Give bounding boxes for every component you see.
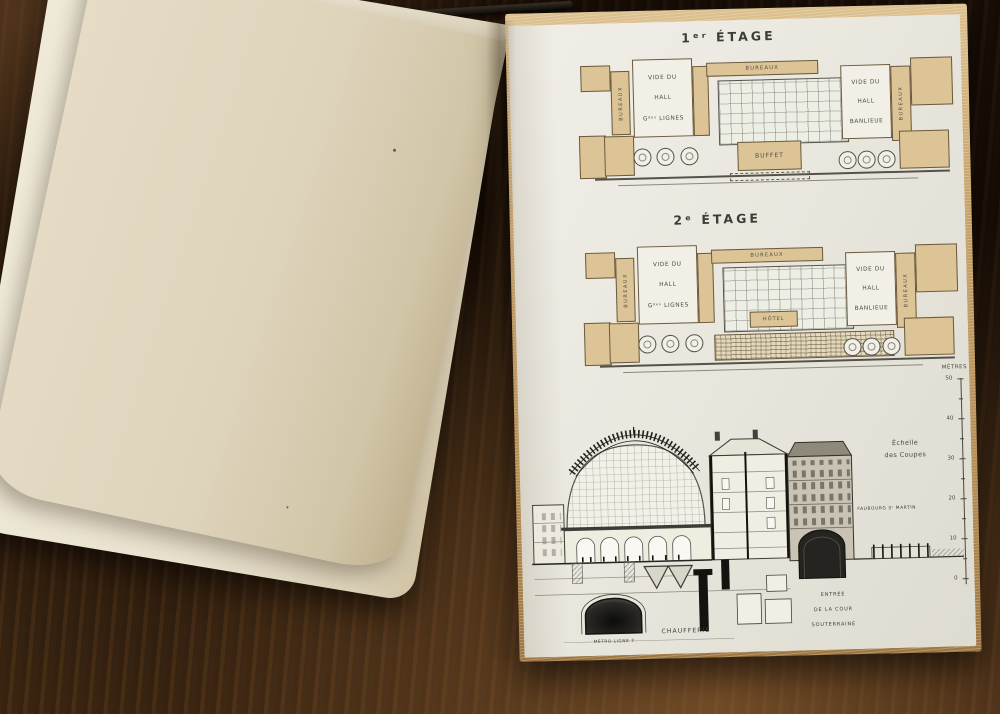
left-annex-building	[533, 505, 566, 565]
hall-left-line1: VIDE DU	[653, 261, 682, 268]
right-offices-label: BUREAUX	[903, 273, 910, 308]
hall-left-line2: HALL	[659, 282, 676, 288]
hall-right-line1: VIDE DU	[851, 79, 880, 86]
hall-void-left: VIDE DU HALL Gᵈᵉˢ LIGNES	[632, 58, 694, 138]
block-top-left	[585, 252, 616, 279]
scale-unit-label: MÈTRES	[925, 364, 969, 371]
left-offices-label: BUREAUX	[617, 86, 624, 121]
block-lower-left-2	[604, 136, 635, 177]
hall-right-line2: HALL	[857, 98, 874, 104]
hall-left-line3: Gᵈᵉˢ LIGNES	[643, 115, 684, 122]
right-offices-label: BUREAUX	[898, 86, 905, 121]
paper-speck-2	[286, 506, 288, 508]
hall-left-line1: VIDE DU	[648, 74, 677, 81]
stair-rotunda	[633, 148, 651, 166]
left-offices-wing: BUREAUX	[615, 258, 636, 322]
floor1-plan: BUREAUX VIDE DU HALL Gᵈᵉˢ LIGNES BUREAUX…	[575, 49, 955, 195]
stair-rotunda	[838, 151, 856, 169]
floor1-title: 1ᵉʳ ÉTAGE	[502, 23, 954, 50]
boiler-label: CHAUFFERIE	[661, 627, 710, 635]
entrance-label-3: SOUTERRAINE	[812, 621, 856, 628]
plate-page: 1ᵉʳ ÉTAGE BUREAUX VIDE DU HALL Gᵈᵉˢ LIGN…	[508, 14, 976, 658]
block-lower-left	[584, 322, 612, 366]
offices-band-top: BUREAUX	[706, 60, 818, 77]
hall-right-line1: VIDE DU	[856, 266, 885, 273]
stair-rotunda	[680, 147, 698, 165]
station-buildings-section	[709, 429, 790, 560]
hall-void-right: VIDE DU HALL BANLIEUE	[840, 64, 892, 139]
stair-rotunda	[661, 335, 679, 353]
entrance-label-1: ENTRÉE	[821, 589, 846, 598]
scale-tick-minor	[926, 398, 970, 399]
hall-void-left: VIDE DU HALL Gᵈᵉˢ LIGNES	[637, 245, 699, 325]
hall-left-line3: Gᵈᵉˢ LIGNES	[648, 302, 689, 309]
cross-section-drawing: MÉTRO LIGNE 7 CHAUFFERIE ENTRÉE DE LA CO…	[529, 416, 970, 655]
hall-left-line2: HALL	[654, 95, 671, 101]
block-bottom-right	[904, 316, 955, 355]
left-page-blank	[0, 0, 508, 575]
offices-band-top: BUREAUX	[711, 247, 823, 264]
block-bottom-right	[899, 129, 950, 168]
block-top-left	[580, 65, 611, 92]
hotel-label: HÔTEL	[763, 316, 785, 323]
hall-right-line2: HALL	[862, 285, 879, 291]
hall-right-line3: BANLIEUE	[850, 118, 884, 125]
hall-void-right: VIDE DU HALL BANLIEUE	[845, 251, 897, 326]
left-offices-wing: BUREAUX	[610, 71, 631, 135]
stair-rotunda	[857, 150, 875, 168]
stair-rotunda	[882, 337, 900, 355]
stair-rotunda	[638, 335, 656, 353]
photo-scene: 1ᵉʳ ÉTAGE BUREAUX VIDE DU HALL Gᵈᵉˢ LIGN…	[0, 0, 1000, 714]
stair-rotunda	[685, 334, 703, 352]
train-shed	[559, 425, 712, 531]
block-lower-left	[579, 135, 607, 179]
metro-tunnel	[581, 594, 646, 635]
floor2-title: 2ᵉ ÉTAGE	[491, 206, 943, 233]
metro-label: MÉTRO LIGNE 7	[594, 638, 635, 644]
floor2-plan: BUREAUX VIDE DU HALL Gᵈᵉˢ LIGNES BUREAUX…	[580, 236, 960, 382]
left-offices-label: BUREAUX	[622, 273, 629, 308]
train-hall-grid	[717, 77, 849, 145]
hall-right-line3: BANLIEUE	[855, 305, 889, 312]
offices-band-label: BUREAUX	[745, 65, 779, 72]
stair-rotunda	[877, 150, 895, 168]
entrance-label-2: DE LA COUR	[814, 606, 853, 613]
block-top-right	[910, 56, 953, 105]
block-lower-left-2	[609, 323, 640, 364]
street-label: FAUBOURG Sᵗ MARTIN	[857, 504, 916, 512]
scale-tick-50: 50	[925, 378, 969, 379]
street-facade-building	[787, 441, 855, 579]
paper-speck	[393, 148, 397, 152]
arcade	[564, 527, 712, 564]
buffet-label: BUFFET	[755, 152, 784, 160]
buffet-room: BUFFET	[737, 140, 802, 171]
offices-band-label: BUREAUX	[750, 252, 784, 259]
hotel-room: HÔTEL	[750, 311, 798, 328]
block-top-right	[915, 243, 958, 292]
stair-rotunda	[656, 148, 674, 166]
